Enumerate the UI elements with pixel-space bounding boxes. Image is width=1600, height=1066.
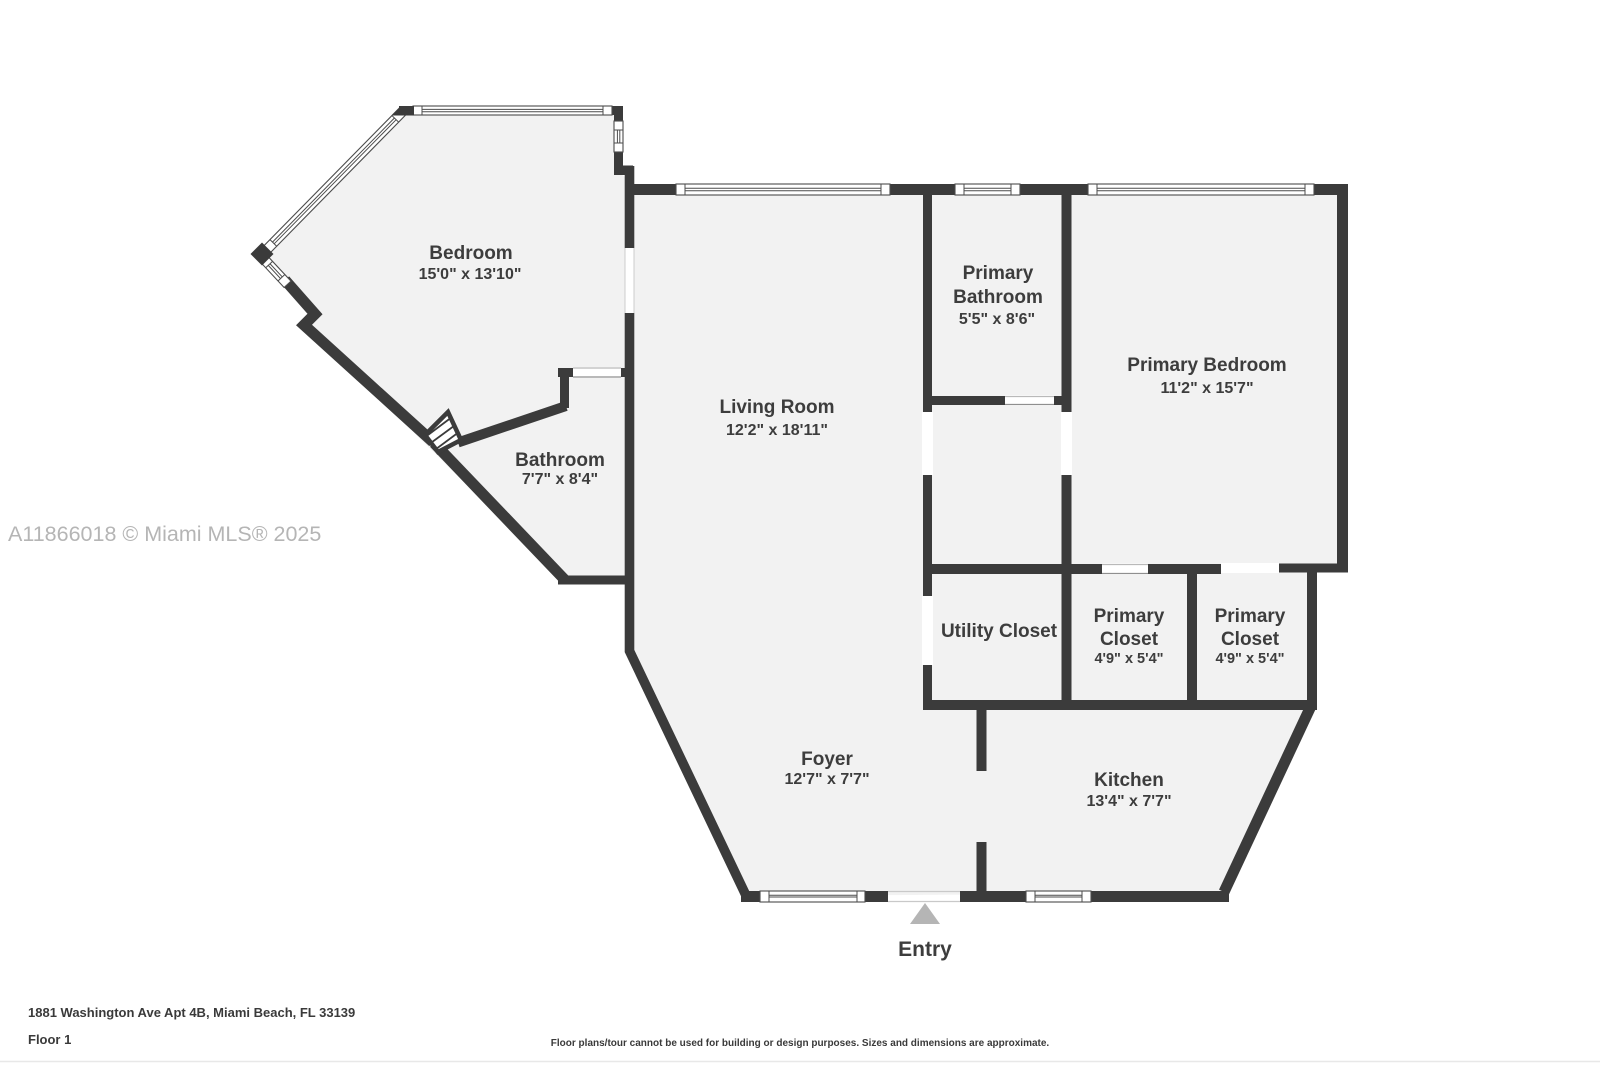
- svg-text:Primary: Primary: [1094, 606, 1165, 627]
- svg-text:Living Room: Living Room: [719, 397, 834, 418]
- svg-text:Bathroom: Bathroom: [515, 450, 605, 471]
- svg-text:Entry: Entry: [898, 938, 952, 961]
- svg-text:5'5" x 8'6": 5'5" x 8'6": [959, 311, 1035, 328]
- svg-text:A11866018 © Miami MLS® 2025: A11866018 © Miami MLS® 2025: [8, 522, 321, 546]
- svg-text:12'7" x 7'7": 12'7" x 7'7": [784, 771, 869, 788]
- svg-text:Closet: Closet: [1100, 629, 1159, 650]
- svg-text:Floor 1: Floor 1: [28, 1032, 71, 1047]
- svg-text:Kitchen: Kitchen: [1094, 770, 1164, 791]
- svg-text:Foyer: Foyer: [801, 749, 853, 770]
- svg-text:11'2" x 15'7": 11'2" x 15'7": [1160, 380, 1253, 397]
- svg-text:15'0" x 13'10": 15'0" x 13'10": [419, 266, 522, 283]
- svg-text:Floor plans/tour cannot be use: Floor plans/tour cannot be used for buil…: [551, 1038, 1050, 1049]
- svg-text:Primary Bedroom: Primary Bedroom: [1127, 355, 1286, 376]
- svg-text:4'9" x 5'4": 4'9" x 5'4": [1215, 651, 1284, 667]
- svg-text:7'7" x 8'4": 7'7" x 8'4": [522, 471, 598, 488]
- svg-text:12'2" x 18'11": 12'2" x 18'11": [726, 422, 828, 439]
- svg-text:1881 Washington Ave Apt 4B, Mi: 1881 Washington Ave Apt 4B, Miami Beach,…: [28, 1005, 355, 1020]
- svg-text:13'4" x 7'7": 13'4" x 7'7": [1086, 793, 1171, 810]
- svg-text:Primary: Primary: [1215, 606, 1286, 627]
- svg-text:4'9" x 5'4": 4'9" x 5'4": [1094, 651, 1163, 667]
- svg-text:Bathroom: Bathroom: [953, 287, 1043, 308]
- svg-text:Closet: Closet: [1221, 629, 1280, 650]
- svg-text:Bedroom: Bedroom: [429, 243, 512, 264]
- svg-text:Utility Closet: Utility Closet: [941, 621, 1058, 642]
- svg-text:Primary: Primary: [963, 263, 1034, 284]
